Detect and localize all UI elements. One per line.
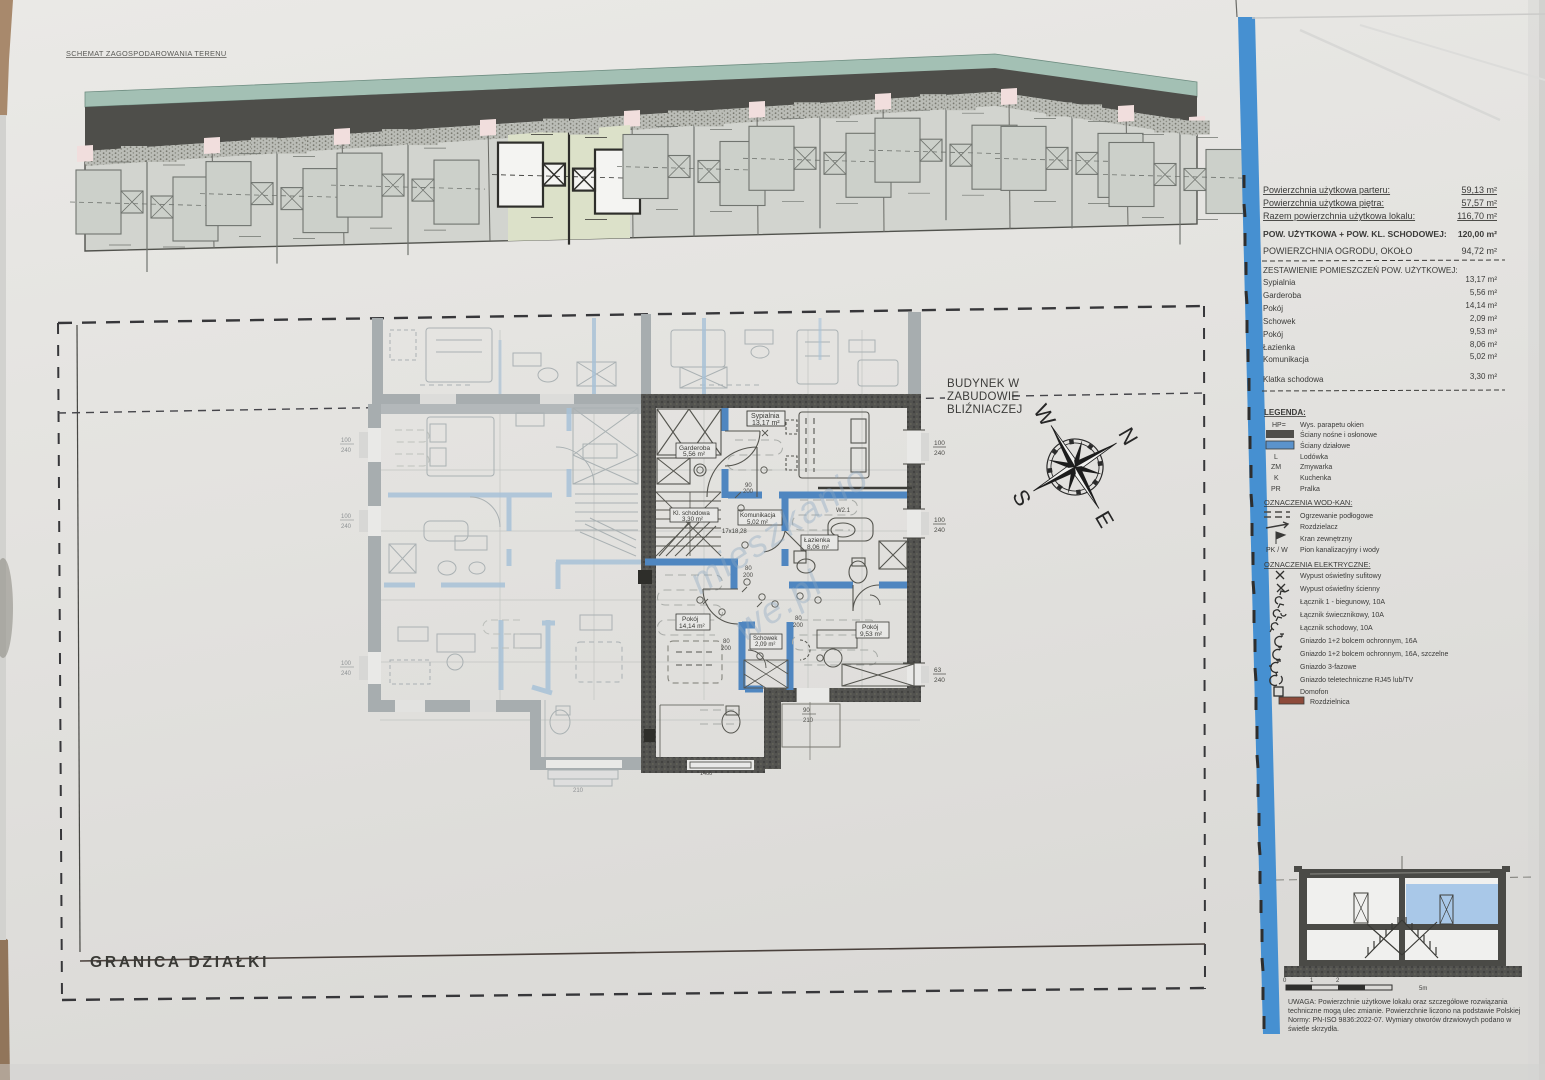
svg-text:8,06 m²: 8,06 m² (807, 544, 830, 551)
svg-text:100: 100 (934, 440, 945, 447)
svg-text:13,17 m²: 13,17 m² (1465, 275, 1497, 284)
svg-text:Łącznik świecznikowy, 10A: Łącznik świecznikowy, 10A (1300, 612, 1384, 619)
svg-text:BLIŹNIACZEJ: BLIŹNIACZEJ (947, 403, 1023, 416)
svg-text:Kuchenka: Kuchenka (1300, 475, 1331, 482)
svg-text:Ściany działowe: Ściany działowe (1300, 441, 1350, 450)
svg-text:Pion kanalizacyjny i wody: Pion kanalizacyjny i wody (1300, 547, 1380, 554)
svg-text:2,09 m²: 2,09 m² (1470, 314, 1497, 323)
svg-text:Pokój: Pokój (1263, 330, 1283, 339)
svg-text:Pokój: Pokój (862, 624, 878, 631)
svg-text:200: 200 (721, 646, 732, 652)
svg-text:5,02 m²: 5,02 m² (1470, 352, 1497, 361)
svg-text:5,56 m²: 5,56 m² (1470, 288, 1497, 297)
svg-text:14,14 m²: 14,14 m² (679, 623, 705, 630)
svg-text:Pokój: Pokój (682, 616, 698, 623)
svg-text:240: 240 (934, 450, 945, 457)
svg-text:57,57 m²: 57,57 m² (1461, 198, 1497, 208)
svg-text:14,14 m²: 14,14 m² (1465, 301, 1497, 310)
svg-text:3,30 m²: 3,30 m² (1470, 372, 1497, 381)
svg-text:116,70 m²: 116,70 m² (1457, 211, 1497, 221)
svg-text:Wys. parapetu okien: Wys. parapetu okien (1300, 422, 1364, 429)
svg-text:Domofon: Domofon (1300, 689, 1329, 696)
svg-text:Gniazdo teletechniczne RJ45 lu: Gniazdo teletechniczne RJ45 lub/TV (1300, 677, 1414, 684)
svg-text:PK / W: PK / W (1266, 547, 1288, 554)
svg-text:Gniazdo 1+2 bolcem ochronnym,: Gniazdo 1+2 bolcem ochronnym, 16A, szcze… (1300, 651, 1449, 658)
svg-text:OZNACZENIA ELEKTRYCZNE:: OZNACZENIA ELEKTRYCZNE: (1264, 560, 1371, 569)
svg-text:Rozdzielacz: Rozdzielacz (1300, 524, 1338, 531)
svg-text:OZNACZENIA WOD-KAN:: OZNACZENIA WOD-KAN: (1264, 498, 1352, 507)
svg-text:Schowek: Schowek (1263, 317, 1296, 326)
svg-text:Klatka schodowa: Klatka schodowa (1263, 375, 1324, 384)
svg-text:L: L (1274, 454, 1278, 461)
svg-text:Normy: PN-ISO 9836:2022-07. Wy: Normy: PN-ISO 9836:2022-07. Wymiary otwo… (1288, 1017, 1512, 1024)
svg-text:techniczne mogą ulec zmianie.: techniczne mogą ulec zmianie. Powierzchn… (1288, 1008, 1521, 1015)
svg-text:63: 63 (934, 667, 942, 674)
svg-text:59,13 m²: 59,13 m² (1461, 185, 1497, 195)
svg-text:240: 240 (934, 677, 945, 684)
svg-text:3,30 m²: 3,30 m² (682, 516, 703, 523)
svg-text:Sypialnia: Sypialnia (751, 413, 780, 420)
svg-text:5m: 5m (1419, 986, 1427, 992)
svg-text:90: 90 (803, 708, 810, 714)
svg-text:94,72 m²: 94,72 m² (1461, 246, 1497, 256)
svg-text:POW. UŻYTKOWA + POW. KL. SCHOD: POW. UŻYTKOWA + POW. KL. SCHODOWEJ: (1263, 229, 1447, 239)
svg-text:PR: PR (1271, 486, 1281, 493)
svg-text:Pokój: Pokój (1263, 304, 1283, 313)
svg-text:Rozdzielnica: Rozdzielnica (1310, 699, 1350, 706)
svg-text:POWIERZCHNIA OGRODU, OKOŁO: POWIERZCHNIA OGRODU, OKOŁO (1263, 246, 1413, 256)
svg-text:200: 200 (743, 489, 754, 495)
svg-text:210: 210 (573, 788, 584, 794)
svg-text:Powierzchnia użytkowa parteru:: Powierzchnia użytkowa parteru: (1263, 185, 1390, 195)
svg-text:ZESTAWIENIE POMIESZCZEŃ POW. U: ZESTAWIENIE POMIESZCZEŃ POW. UŻYTKOWEJ: (1263, 265, 1458, 275)
svg-text:8,06 m²: 8,06 m² (1470, 340, 1497, 349)
svg-text:5,56 m²: 5,56 m² (683, 451, 706, 458)
svg-text:Powierzchnia użytkowa piętra:: Powierzchnia użytkowa piętra: (1263, 198, 1384, 208)
svg-text:LEGENDA:: LEGENDA: (1264, 408, 1306, 417)
svg-text:K: K (1274, 475, 1279, 482)
svg-text:ZM: ZM (1271, 464, 1281, 471)
svg-text:9,53 m²: 9,53 m² (860, 631, 883, 638)
svg-text:Łącznik 1 - biegunowy, 10A: Łącznik 1 - biegunowy, 10A (1300, 599, 1385, 606)
svg-text:HP=: HP= (1272, 422, 1286, 429)
svg-text:Kran zewnętrzny: Kran zewnętrzny (1300, 536, 1353, 543)
svg-text:200: 200 (793, 623, 804, 629)
svg-text:Garderoba: Garderoba (1263, 291, 1302, 300)
svg-text:240: 240 (341, 524, 352, 530)
svg-text:100: 100 (934, 517, 945, 524)
svg-text:100: 100 (341, 438, 352, 444)
svg-text:Wypust oświetlny ścienny: Wypust oświetlny ścienny (1300, 586, 1380, 593)
svg-text:210: 210 (803, 718, 814, 724)
svg-text:240: 240 (934, 527, 945, 534)
svg-text:ZABUDOWIE: ZABUDOWIE (947, 391, 1019, 403)
svg-text:Łazienka: Łazienka (804, 537, 830, 544)
svg-text:Lodówka: Lodówka (1300, 454, 1328, 461)
svg-text:1400: 1400 (700, 771, 712, 777)
svg-text:100: 100 (341, 661, 352, 667)
svg-text:Gniazdo 1+2 bolcem ochronnym,: Gniazdo 1+2 bolcem ochronnym, 16A (1300, 638, 1418, 645)
svg-text:Zmywarka: Zmywarka (1300, 464, 1332, 471)
svg-text:80: 80 (723, 639, 730, 645)
svg-text:Ogrzewanie podłogowe: Ogrzewanie podłogowe (1300, 513, 1373, 520)
svg-text:9,53 m²: 9,53 m² (1470, 327, 1497, 336)
svg-text:Pralka: Pralka (1300, 486, 1320, 493)
svg-text:Razem powierzchnia użytkowa lo: Razem powierzchnia użytkowa lokalu: (1263, 211, 1415, 221)
svg-text:UWAGA: Powierzchnie użytkowe l: UWAGA: Powierzchnie użytkowe lokalu oraz… (1288, 999, 1508, 1006)
svg-text:Łącznik schodowy, 10A: Łącznik schodowy, 10A (1300, 625, 1373, 632)
svg-text:Gniazdo 3-fazowe: Gniazdo 3-fazowe (1300, 664, 1357, 671)
svg-text:SCHEMAT ZAGOSPODAROWANIA TEREN: SCHEMAT ZAGOSPODAROWANIA TERENU (66, 49, 227, 58)
svg-text:Sypialnia: Sypialnia (1263, 278, 1296, 287)
svg-text:GRANICA DZIAŁKI: GRANICA DZIAŁKI (90, 954, 269, 971)
svg-text:120,00 m²: 120,00 m² (1458, 229, 1497, 239)
svg-text:13,17 m²: 13,17 m² (752, 420, 780, 427)
svg-text:Ściany nośne i osłonowe: Ściany nośne i osłonowe (1300, 430, 1377, 439)
svg-text:Komunikacja: Komunikacja (1263, 355, 1309, 364)
svg-text:240: 240 (341, 671, 352, 677)
svg-text:Wypust oświetlny sufitowy: Wypust oświetlny sufitowy (1300, 573, 1382, 580)
svg-text:świetle skrzydła.: świetle skrzydła. (1288, 1026, 1339, 1033)
svg-text:BUDYNEK W: BUDYNEK W (947, 378, 1019, 390)
svg-text:Łazienka: Łazienka (1263, 343, 1296, 352)
svg-text:240: 240 (341, 448, 352, 454)
svg-text:100: 100 (341, 514, 352, 520)
